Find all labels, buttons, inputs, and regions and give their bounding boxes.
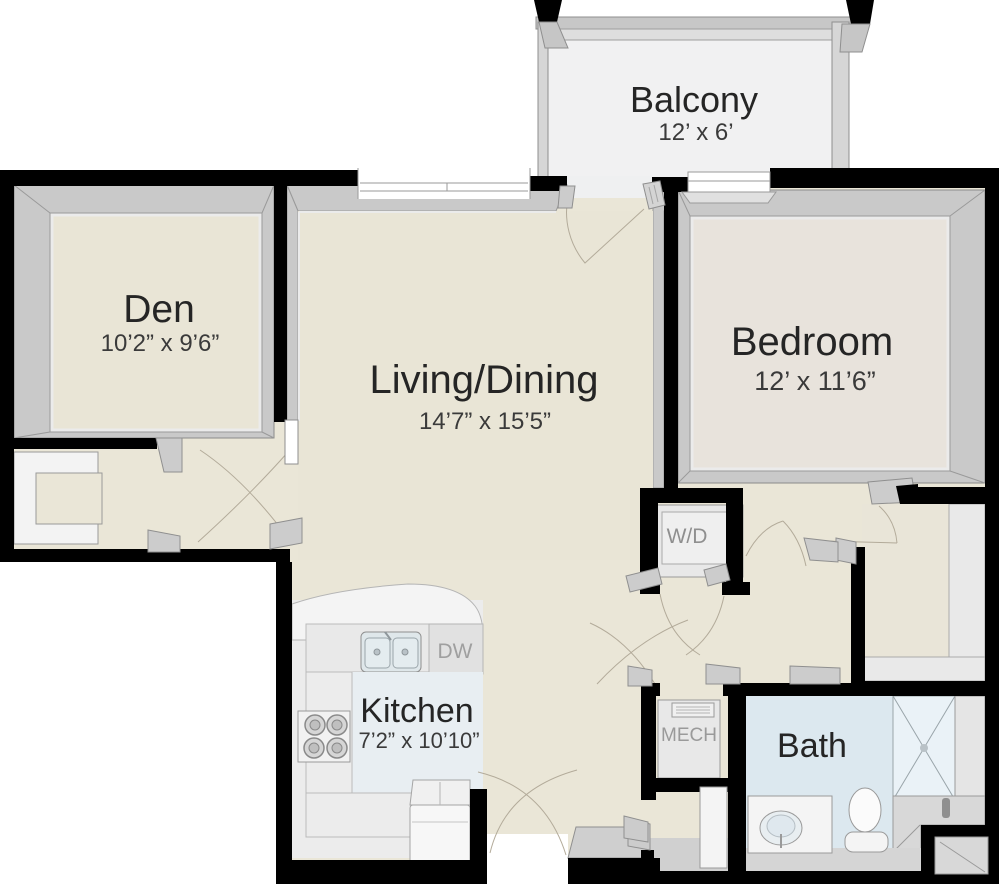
svg-text:W/D: W/D (667, 525, 708, 548)
svg-text:14’7” x 15’5”: 14’7” x 15’5” (419, 408, 551, 435)
svg-text:Kitchen: Kitchen (360, 692, 473, 730)
svg-text:12’ x 11’6”: 12’ x 11’6” (754, 366, 876, 396)
svg-text:10’2” x 9’6”: 10’2” x 9’6” (101, 330, 220, 357)
svg-text:Living/Dining: Living/Dining (369, 358, 598, 402)
svg-text:Bath: Bath (777, 727, 847, 765)
svg-text:Balcony: Balcony (630, 79, 758, 120)
svg-text:Den: Den (123, 288, 195, 331)
svg-text:MECH: MECH (661, 725, 717, 746)
svg-text:DW: DW (438, 640, 473, 663)
svg-text:12’ x 6’: 12’ x 6’ (658, 119, 733, 146)
svg-text:7’2” x 10’10”: 7’2” x 10’10” (358, 728, 479, 753)
svg-text:Bedroom: Bedroom (731, 320, 893, 364)
